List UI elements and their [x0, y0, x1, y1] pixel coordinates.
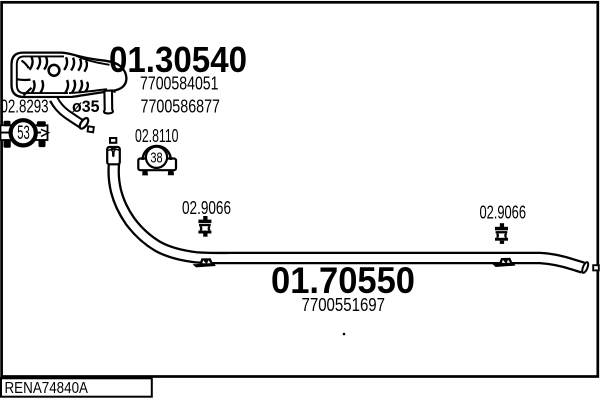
svg-text:7700551697: 7700551697 — [302, 295, 386, 315]
svg-text:02.9066: 02.9066 — [182, 198, 231, 218]
svg-text:7700586877: 7700586877 — [141, 97, 221, 117]
svg-text:38: 38 — [150, 150, 162, 167]
svg-text:02.8293: 02.8293 — [1, 96, 49, 116]
svg-text:02.9066: 02.9066 — [480, 202, 527, 222]
svg-text:7700584051: 7700584051 — [140, 73, 219, 93]
svg-text:RENA74840A: RENA74840A — [5, 380, 89, 397]
svg-text:02.8110: 02.8110 — [135, 126, 179, 146]
svg-text:53: 53 — [17, 122, 30, 144]
svg-text:ø35: ø35 — [72, 98, 100, 116]
